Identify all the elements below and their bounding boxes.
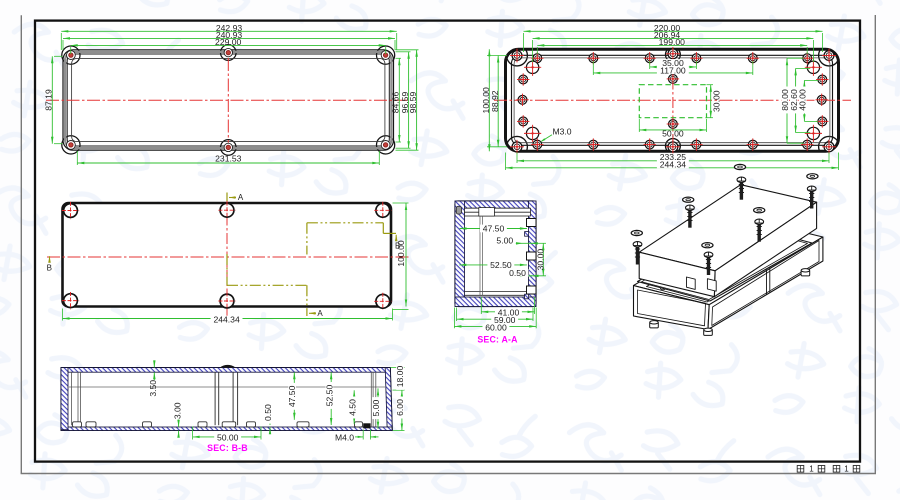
svg-text:5.00: 5.00 (496, 236, 513, 246)
svg-text:6.00: 6.00 (395, 399, 405, 416)
svg-text:1: 1 (844, 464, 849, 473)
svg-text:1: 1 (809, 464, 814, 473)
svg-text:244.34: 244.34 (660, 160, 687, 170)
svg-text:30.00: 30.00 (536, 249, 546, 271)
svg-text:0.50: 0.50 (509, 268, 526, 278)
svg-text:50.00: 50.00 (662, 129, 684, 139)
svg-text:100.00: 100.00 (396, 240, 406, 267)
svg-text:M4.0: M4.0 (335, 432, 354, 442)
svg-text:40.00: 40.00 (798, 89, 808, 111)
svg-text:52.50: 52.50 (324, 385, 334, 407)
svg-text:18.00: 18.00 (395, 366, 405, 388)
svg-text:60.00: 60.00 (485, 322, 507, 332)
svg-text:87.19: 87.19 (43, 89, 53, 111)
svg-text:A: A (317, 309, 323, 318)
svg-text:199.00: 199.00 (659, 37, 686, 47)
svg-text:50.00: 50.00 (217, 432, 239, 442)
svg-text:47.50: 47.50 (287, 385, 297, 407)
svg-text:SEC: A-A: SEC: A-A (477, 334, 518, 344)
svg-text:98.59: 98.59 (408, 92, 418, 114)
svg-text:244.34: 244.34 (213, 315, 240, 325)
svg-text:M3.0: M3.0 (552, 126, 571, 136)
svg-text:231.53: 231.53 (215, 154, 242, 164)
svg-text:0.50: 0.50 (263, 404, 273, 421)
svg-text:117.00: 117.00 (660, 65, 686, 75)
svg-text:47.50: 47.50 (483, 224, 505, 234)
svg-text:3.50: 3.50 (148, 380, 158, 397)
svg-text:SEC: B-B: SEC: B-B (207, 443, 248, 453)
svg-text:30.00: 30.00 (712, 90, 722, 112)
svg-text:5.00: 5.00 (371, 400, 381, 417)
svg-text:229.00: 229.00 (215, 37, 242, 47)
svg-text:B: B (47, 264, 52, 273)
svg-text:4.50: 4.50 (347, 399, 357, 416)
svg-text:88.92: 88.92 (490, 90, 500, 112)
svg-text:3.00: 3.00 (173, 402, 183, 419)
svg-text:A: A (238, 193, 244, 202)
